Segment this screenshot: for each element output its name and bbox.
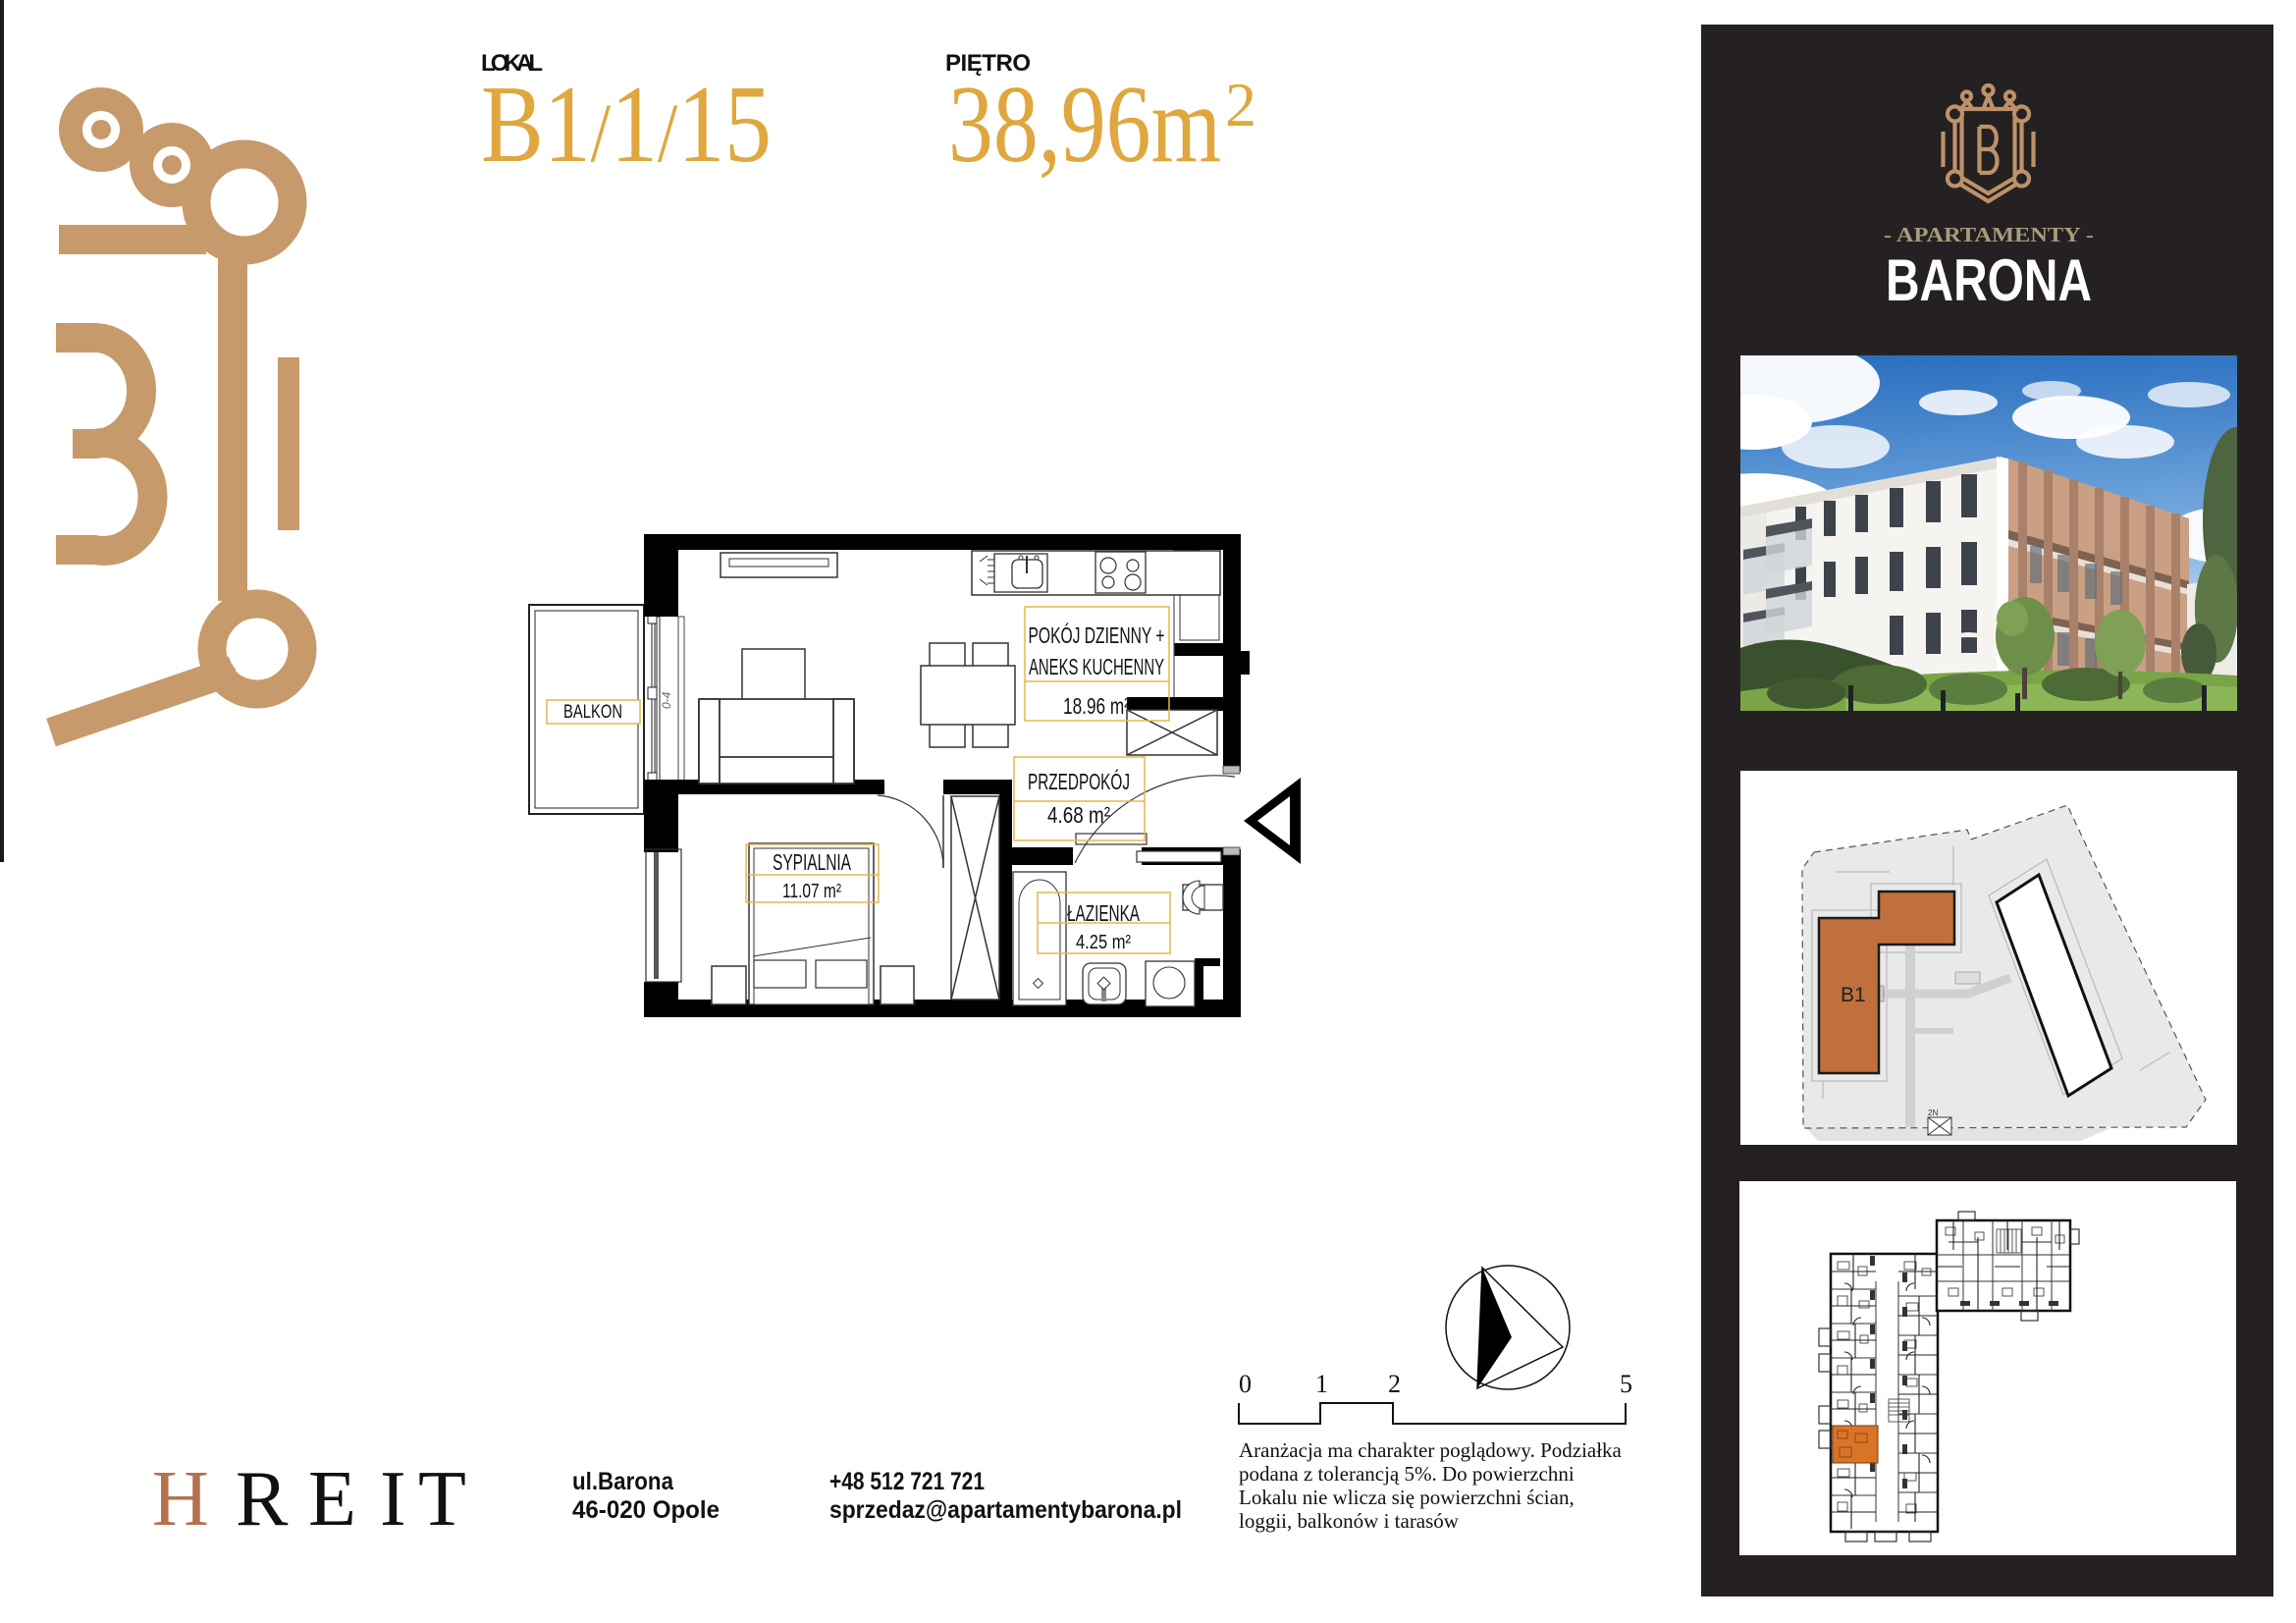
svg-text:Lokalu nie wlicza się powierzc: Lokalu nie wlicza się powierzchni ścian, [1239, 1486, 1575, 1509]
svg-text:SYPIALNIA: SYPIALNIA [773, 849, 851, 875]
svg-text:- APARTAMENTY -: - APARTAMENTY - [1884, 223, 2094, 246]
svg-text:R: R [236, 1456, 289, 1542]
svg-text:loggii, balkonów i tarasów: loggii, balkonów i tarasów [1239, 1509, 1460, 1533]
svg-text:POKÓJ DZIENNY +: POKÓJ DZIENNY + [1029, 622, 1165, 648]
svg-text:2N: 2N [1928, 1109, 1938, 1117]
svg-text:BALKON: BALKON [563, 702, 622, 723]
svg-text:5: 5 [1620, 1370, 1632, 1398]
svg-text:sprzedaz@apartamentybarona.pl: sprzedaz@apartamentybarona.pl [829, 1496, 1182, 1524]
svg-text:Aranżacja ma charakter poglądo: Aranżacja ma charakter poglądowy. Podzia… [1239, 1438, 1623, 1462]
svg-text:ul.Barona: ul.Barona [572, 1468, 674, 1495]
svg-text:+48 512 721 721: +48 512 721 721 [829, 1468, 985, 1495]
svg-text:B1/1/15: B1/1/15 [481, 64, 772, 186]
svg-text:38,96m: 38,96m [948, 64, 1221, 186]
svg-text:B1: B1 [1841, 984, 1866, 1006]
svg-text:ANEKS KUCHENNY: ANEKS KUCHENNY [1029, 654, 1164, 679]
svg-text:T: T [418, 1456, 466, 1542]
svg-text:E: E [308, 1456, 356, 1542]
svg-text:18.96 m²: 18.96 m² [1063, 693, 1130, 719]
svg-text:H: H [152, 1456, 209, 1542]
svg-text:4.68 m²: 4.68 m² [1047, 802, 1110, 828]
svg-text:podana z tolerancją 5%. Do pow: podana z tolerancją 5%. Do powierzchni [1239, 1462, 1575, 1486]
svg-text:BARONA: BARONA [1886, 247, 2092, 313]
svg-text:0-4: 0-4 [660, 691, 673, 709]
svg-text:1: 1 [1315, 1370, 1328, 1398]
svg-text:2: 2 [1225, 70, 1256, 139]
svg-text:PRZEDPOKÓJ: PRZEDPOKÓJ [1028, 769, 1130, 794]
svg-text:I: I [380, 1456, 406, 1542]
svg-text:46-020 Opole: 46-020 Opole [572, 1496, 720, 1524]
svg-text:11.07 m²: 11.07 m² [782, 881, 841, 902]
svg-text:4.25 m²: 4.25 m² [1076, 932, 1131, 953]
svg-text:ŁAZIENKA: ŁAZIENKA [1067, 900, 1140, 926]
svg-text:0: 0 [1239, 1370, 1252, 1398]
svg-text:2: 2 [1388, 1370, 1401, 1398]
